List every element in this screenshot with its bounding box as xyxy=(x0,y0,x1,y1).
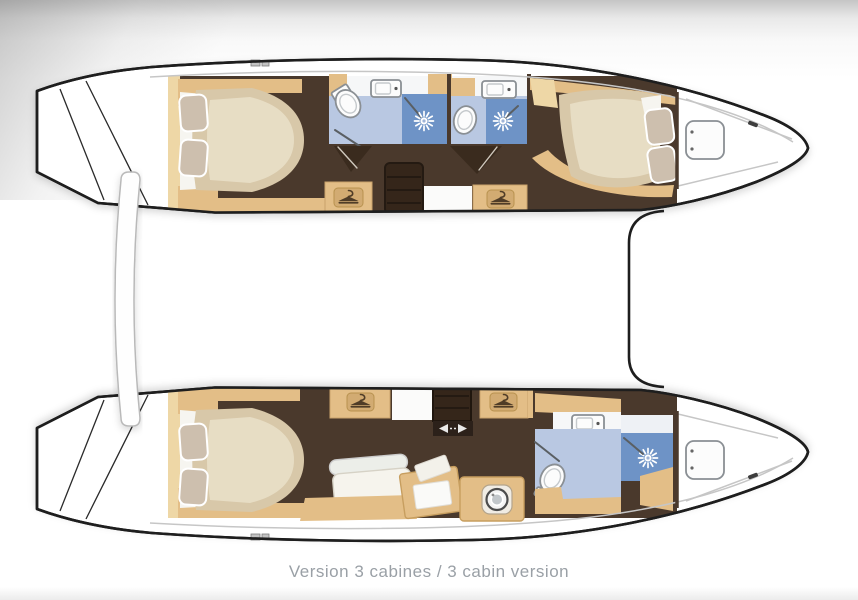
pillow xyxy=(179,468,208,506)
wardrobe-locker xyxy=(480,388,528,418)
washing-machine-icon xyxy=(487,489,508,510)
aft-crossbeam-plank xyxy=(115,172,140,426)
washing-machine-cabinet xyxy=(460,477,524,521)
trim xyxy=(528,390,533,418)
bottom-hull xyxy=(37,384,808,541)
caption: Version 3 cabines / 3 cabin version xyxy=(0,562,858,582)
pillow xyxy=(179,139,208,177)
corner-shelf xyxy=(530,78,558,108)
pillow xyxy=(646,145,678,184)
brochure-page: Version 3 cabines / 3 cabin version xyxy=(0,0,858,600)
landing xyxy=(424,186,472,213)
bottom-hull-interior xyxy=(168,384,677,521)
wardrobe-locker xyxy=(330,388,390,418)
shelf xyxy=(621,415,673,434)
bath-locker xyxy=(451,78,475,96)
pillow xyxy=(644,107,675,145)
sliding-door-arrows-icon xyxy=(433,421,473,436)
sink xyxy=(371,80,401,97)
sink xyxy=(482,81,516,98)
seat-base xyxy=(300,495,417,521)
top-hull xyxy=(37,59,808,214)
bathroom-wall xyxy=(447,74,451,144)
wardrobe-locker xyxy=(325,182,372,213)
bed-highlight xyxy=(570,99,653,178)
catamaran-floor-plan xyxy=(0,0,858,560)
stairs-icon xyxy=(385,163,423,214)
pillow xyxy=(179,423,208,461)
scan-shading-bottom xyxy=(0,586,858,600)
top-hull-interior xyxy=(168,74,679,214)
foredeck-edge xyxy=(629,211,664,387)
passage xyxy=(392,387,432,420)
pillow xyxy=(179,94,208,132)
